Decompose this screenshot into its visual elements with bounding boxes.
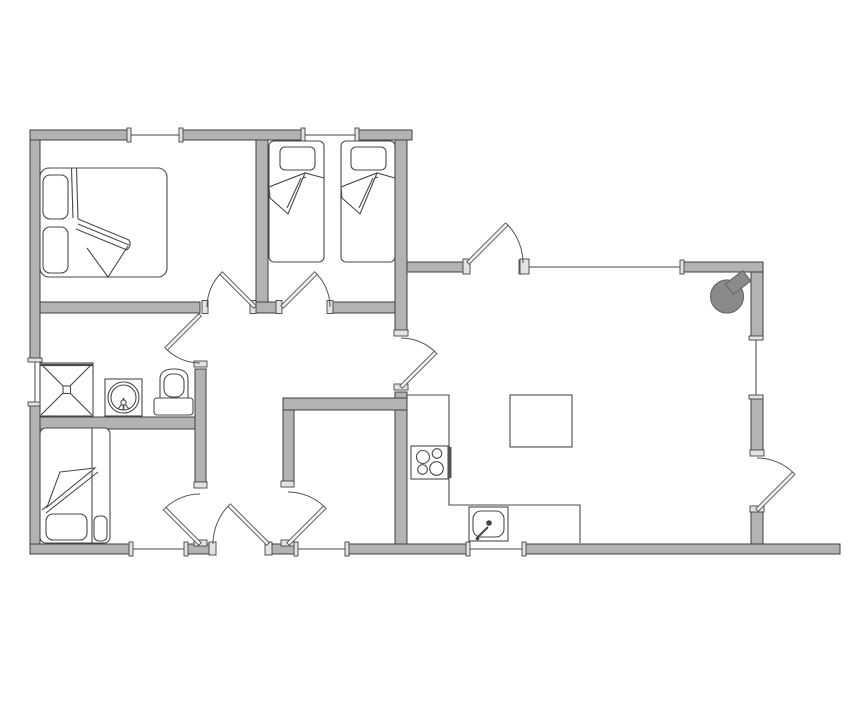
jamb-twin-hinge: [276, 301, 282, 314]
wall-kitchen-west: [395, 392, 407, 544]
wall-top-c: [355, 130, 412, 140]
wall-bottom-e: [522, 544, 840, 554]
bed1-frame: [40, 168, 167, 277]
door-entry-swing-arc: [213, 505, 229, 544]
wall-twin-east-upper: [395, 140, 407, 330]
bed3-frame: [40, 428, 110, 543]
window-bedroom3-south-cap: [129, 542, 133, 556]
cooktop: [411, 446, 448, 479]
door-utility-leaf: [287, 506, 326, 545]
wall-bedroom-divider: [256, 140, 268, 302]
sink-drain: [486, 520, 492, 526]
sink-tap-base: [476, 537, 480, 541]
door-living-north-swing-arc: [507, 224, 523, 263]
door-utility-swing-arc: [288, 492, 325, 507]
floor-plan-drawing: [0, 0, 855, 714]
door-bathroom-leaf: [165, 314, 201, 350]
window-twinroom-north-cap: [355, 128, 359, 142]
wall-left-upper: [30, 140, 40, 362]
window-kitchen-south-cap: [522, 542, 526, 556]
window-bedroom3-south-cap: [184, 542, 188, 556]
door-living-north-leaf: [467, 223, 508, 264]
wall-right-mid: [751, 395, 763, 455]
door-bedroom3-leaf: [163, 507, 201, 545]
window-utility-south-cap: [345, 542, 349, 556]
door-twinroom-leaf: [281, 272, 317, 308]
wall-right-stub: [751, 510, 763, 544]
door-hall-living-leaf: [400, 351, 437, 388]
window-bedroom1-north-cap: [127, 128, 131, 142]
jamb-bathroom-bottom: [194, 361, 207, 367]
wall-utility-north: [283, 398, 407, 410]
wall-living-north-a: [405, 262, 465, 272]
toilet-tank: [154, 398, 193, 415]
jamb-bedroom3-top: [194, 482, 207, 488]
window-bedroom1-north-cap: [179, 128, 183, 142]
door-bedroom3-swing-arc: [165, 494, 200, 509]
washbasin-tap-knob: [121, 400, 126, 405]
wall-bath-east: [195, 369, 206, 482]
cooktop-panel: [448, 447, 452, 478]
wall-top-a: [30, 130, 131, 140]
window-twinroom-north-cap: [301, 128, 305, 142]
door-entry-leaf: [228, 504, 269, 545]
floor-plan-page: [0, 0, 855, 714]
window-bathroom-west-cap: [28, 358, 42, 362]
jamb-backdoor-top: [750, 450, 764, 456]
wall-bedrooms-south-a: [40, 302, 200, 313]
toilet-seat: [164, 374, 184, 397]
jamb-hall-living-top: [394, 330, 408, 336]
window-kitchen-south-cap: [466, 542, 470, 556]
door-living-east-leaf: [756, 472, 795, 511]
wall-top-b: [179, 130, 305, 140]
window-living-north-cap: [680, 260, 684, 274]
wall-bottom-d: [345, 544, 470, 554]
wall-bath-south: [40, 417, 195, 429]
wall-left-lower: [30, 402, 40, 544]
door-bedroom1-swing-arc: [207, 273, 221, 307]
wall-living-north-b: [680, 262, 763, 272]
wall-utility-west: [283, 410, 294, 482]
window-living-east-cap: [749, 336, 763, 340]
dining-table: [510, 395, 572, 447]
wall-bottom-a: [30, 544, 133, 554]
jamb-utility-top: [281, 481, 294, 487]
wall-right-upper: [751, 262, 763, 340]
jamb-livingdoor-stop: [520, 259, 529, 274]
door-bedroom1-leaf: [220, 272, 256, 308]
window-utility-south-cap: [294, 542, 298, 556]
door-living-east-swing-arc: [757, 458, 794, 473]
window-living-east-cap: [749, 395, 763, 399]
door-hall-living-swing-arc: [401, 338, 436, 352]
shower-drain: [63, 386, 71, 394]
